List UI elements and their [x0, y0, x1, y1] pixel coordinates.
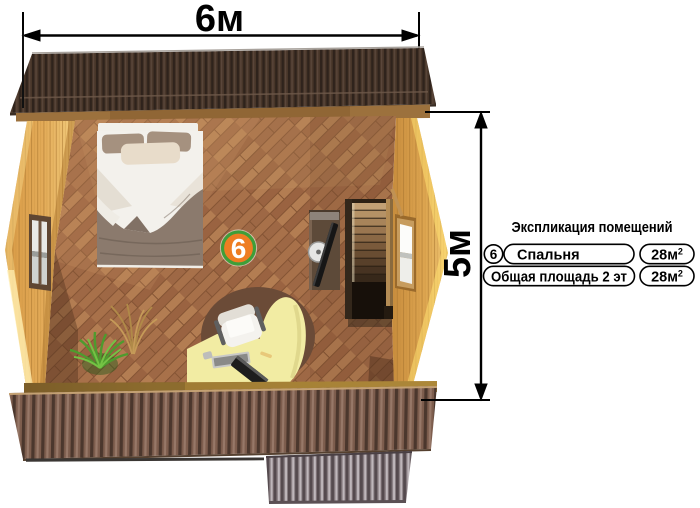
svg-text:6м: 6м [195, 0, 244, 40]
svg-text:Спальня: Спальня [517, 248, 580, 264]
svg-text:5м: 5м [437, 229, 479, 278]
svg-text:Общая площадь 2 эт: Общая площадь 2 эт [491, 270, 627, 286]
svg-text:6: 6 [231, 233, 247, 264]
svg-text:Экспликация помещений: Экспликация помещений [512, 219, 673, 236]
svg-text:6: 6 [490, 247, 498, 262]
